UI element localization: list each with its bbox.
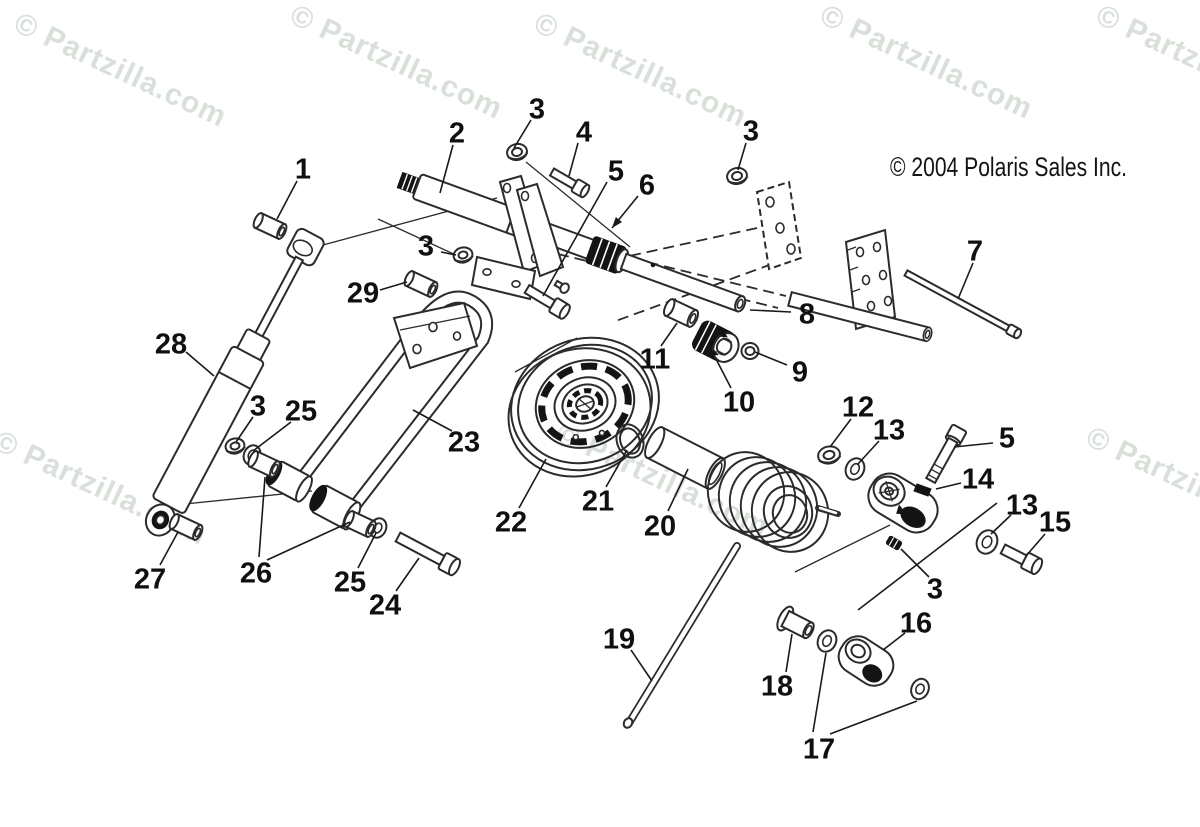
copyright-text: © 2004 Polaris Sales Inc. [890,152,1127,182]
callout-26-leader [267,522,350,560]
screw-small [553,279,570,295]
callout-17-leader [830,701,917,734]
callout-8-leader [750,310,791,312]
callout-label-3: 3 [743,115,759,147]
callout-label-27: 27 [134,563,166,595]
callout-9-leader [755,352,787,365]
callout-label-15: 15 [1039,506,1071,538]
callout-label-19: 19 [603,623,635,655]
callout-label-28: 28 [155,328,187,360]
callout-label-4: 4 [576,116,592,148]
bushing-29 [403,270,440,298]
callout-label-6: 6 [639,169,655,201]
watermark-text: © Partzilla.com [815,0,1038,126]
nut-12 [816,444,841,465]
callout-label-16: 16 [900,607,932,639]
parts-diagram-page: © Partzilla.com© Partzilla.com© Partzill… [0,0,1200,827]
eyelet-16 [832,630,900,692]
callout-layer: 1234563329288791011233252221201213514131… [134,93,1071,765]
callout-14-leader [936,483,961,489]
callout-17-leader [813,653,826,732]
callout-label-14: 14 [962,463,994,495]
callout-28-leader [186,352,214,376]
bushing-26 [342,510,377,539]
shaft-bracket [472,176,563,299]
callout-label-3: 3 [927,573,943,605]
callout-label-26: 26 [240,557,272,589]
watermark-text: © Partzilla.com [9,6,232,133]
watermark-text: © Partzilla.com [529,6,752,133]
watermark-text: © Partzilla.com [285,0,508,126]
callout-label-9: 9 [792,356,808,388]
callout-label-5: 5 [608,155,624,187]
o-ring-9 [742,343,759,359]
watermark-text: © Partzilla.com [1091,0,1200,126]
callout-label-2: 2 [449,117,465,149]
callout-label-8: 8 [799,298,815,330]
bolt-24 [394,529,462,577]
callout-label-1: 1 [295,153,311,185]
callout-10-leader [716,359,731,388]
callout-25-leader [358,533,376,568]
bolt-5 [924,424,967,484]
callout-29-leader [380,282,407,290]
callout-label-25: 25 [285,395,317,427]
exploded-parts-drawing: © Partzilla.com© Partzilla.com© Partzill… [0,0,1200,827]
nut-3 [726,166,749,186]
callout-label-25: 25 [334,566,366,598]
callout-label-21: 21 [582,485,614,517]
callout-24-leader [396,558,419,591]
washer-17 [908,676,932,702]
callout-label-10: 10 [723,386,755,418]
callout-label-17: 17 [803,733,835,765]
bolt-15 [999,541,1044,575]
callout-label-11: 11 [640,343,671,375]
callout-1-leader [277,181,297,219]
bushing-11 [662,298,700,329]
callout-26-leader [259,477,265,557]
callout-label-20: 20 [644,510,676,542]
watermark-text: © Partzilla.com [1081,420,1200,547]
callout-label-13: 13 [873,414,905,446]
bushing-1 [252,212,289,240]
callout-22-leader [519,459,546,508]
callout-label-23: 23 [448,426,480,458]
set-screw-3 [886,536,903,551]
callout-7-leader [958,263,973,299]
washer-13 [973,527,1001,557]
bushing-26 [246,450,281,479]
callout-18-leader [786,634,792,672]
callout-label-7: 7 [967,235,983,267]
bushing-18 [774,604,818,644]
callout-label-3: 3 [418,230,434,262]
callout-label-29: 29 [347,277,379,309]
linkage-parts [774,466,945,692]
callout-label-3: 3 [529,93,545,125]
washer-13 [842,455,868,483]
callout-label-22: 22 [495,506,527,538]
nut-3 [224,437,246,456]
callout-label-18: 18 [761,670,793,702]
callout-label-24: 24 [369,589,401,621]
nut-3 [506,142,529,162]
callout-label-13: 13 [1006,489,1038,521]
callout-label-5: 5 [999,422,1015,454]
callout-label-12: 12 [842,391,874,423]
washer-17 [814,627,840,655]
callout-label-3: 3 [250,390,266,422]
